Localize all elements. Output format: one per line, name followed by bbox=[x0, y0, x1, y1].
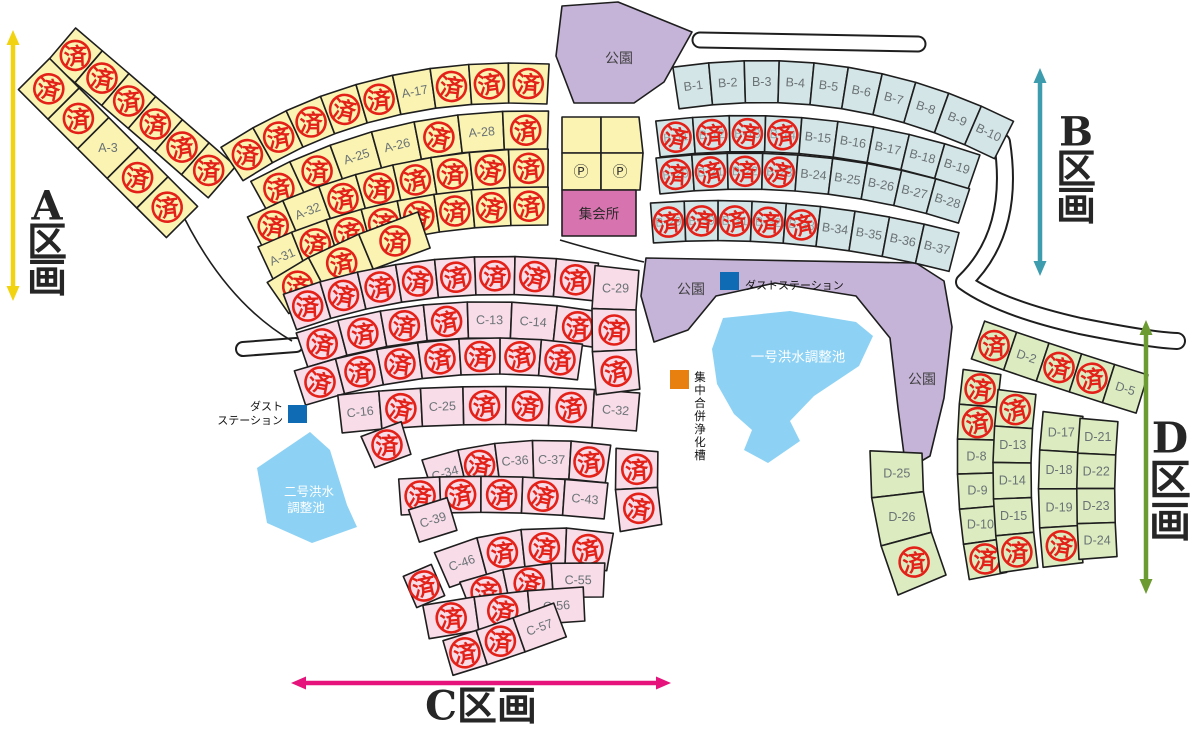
sold-stamp: 済 bbox=[660, 159, 690, 189]
section-B-label: 画 bbox=[1056, 183, 1096, 230]
lot-B-24: B-24 bbox=[795, 155, 833, 194]
lot-number: C-37 bbox=[538, 453, 565, 467]
lot-number: D-24 bbox=[1084, 534, 1111, 548]
dust-station-1-label: ステーション bbox=[217, 415, 283, 427]
dust-station-1-label: ダスト bbox=[250, 399, 283, 413]
section-A-label: 画 bbox=[27, 255, 67, 302]
lot-B-3: B-3 bbox=[744, 61, 779, 103]
lot-number: D-18 bbox=[1046, 463, 1073, 477]
sold-stamp-char: 済 bbox=[309, 330, 336, 359]
sold-stamp-char: 済 bbox=[154, 194, 181, 223]
sold-stamp-char: 済 bbox=[443, 198, 468, 225]
lot-B-4: B-4 bbox=[778, 61, 814, 105]
sold-stamp: 済 bbox=[545, 345, 575, 375]
lot-number: D-15 bbox=[1000, 509, 1027, 523]
sold-stamp-char: 済 bbox=[490, 539, 517, 568]
lot-sold: 済 bbox=[418, 339, 461, 379]
dust-station-2-label: ダストステーション bbox=[745, 278, 844, 292]
sold-stamp: 済 bbox=[440, 196, 470, 226]
sold-stamp-char: 済 bbox=[438, 73, 465, 102]
sold-stamp: 済 bbox=[512, 390, 544, 422]
lot-sold-B-12: B-12済 bbox=[693, 116, 730, 154]
lot-sold: 済 bbox=[377, 343, 423, 385]
lot-C-16: C-16 bbox=[338, 391, 382, 433]
section-C-label: C区画 bbox=[425, 683, 537, 730]
lot-sold: 済 bbox=[1040, 526, 1083, 568]
sold-stamp: 済 bbox=[622, 454, 652, 484]
lot-number: B-24 bbox=[800, 166, 828, 183]
park-top-label: 公園 bbox=[605, 50, 633, 66]
sold-stamp: 済 bbox=[1076, 362, 1107, 393]
lot-number: A-3 bbox=[98, 141, 118, 155]
sold-stamp-char: 済 bbox=[663, 162, 688, 189]
lot-sold: 済 bbox=[430, 65, 472, 109]
septic-tank-label: 化 bbox=[694, 435, 706, 449]
sold-stamp-char: 済 bbox=[478, 194, 505, 223]
septic-tank-label: 併 bbox=[694, 409, 706, 423]
sold-stamp: 済 bbox=[513, 152, 545, 184]
sold-stamp-char: 済 bbox=[367, 176, 392, 203]
sold-stamp-char: 済 bbox=[296, 294, 321, 321]
lot-D-21: D-21 bbox=[1078, 418, 1118, 455]
lot-sold: 済 bbox=[463, 387, 506, 425]
sold-stamp-char: 済 bbox=[516, 71, 541, 98]
sold-stamp-char: 済 bbox=[625, 495, 652, 524]
lot-sold: 済 bbox=[569, 441, 611, 483]
sold-stamp: 済 bbox=[487, 480, 517, 510]
sold-stamp: 済 bbox=[63, 103, 93, 133]
lot-sold: 済 bbox=[475, 257, 516, 295]
sold-stamp-char: 済 bbox=[770, 121, 797, 150]
lot-B-15: B-15 bbox=[799, 118, 838, 158]
lot-sold: 済 bbox=[357, 265, 401, 309]
septic-tank-label: 中 bbox=[694, 384, 706, 397]
lot-number: C-32 bbox=[602, 402, 630, 418]
sold-stamp-char: 済 bbox=[689, 208, 716, 236]
lot-sold: 済 bbox=[995, 390, 1036, 429]
sold-stamp: 済 bbox=[302, 156, 332, 186]
lot-sold: 済 bbox=[396, 260, 439, 303]
lot-sold: 済 bbox=[958, 404, 998, 440]
sold-stamp: 済 bbox=[510, 114, 541, 145]
sold-stamp: 済 bbox=[140, 108, 171, 139]
sold-stamp-char: 済 bbox=[490, 483, 514, 509]
sold-stamp: 済 bbox=[113, 85, 145, 117]
lot-number: C-43 bbox=[571, 491, 599, 507]
septic-tank-label: 浄 bbox=[694, 422, 706, 436]
sold-stamp-char: 済 bbox=[488, 629, 513, 656]
lot-number: D-26 bbox=[888, 510, 915, 524]
sold-stamp: 済 bbox=[599, 315, 629, 345]
lot-sold: 済 bbox=[469, 150, 510, 191]
sold-stamp-char: 済 bbox=[350, 320, 377, 349]
lot-sold: 済 bbox=[539, 340, 583, 380]
pond-2-label: 二号洪水 bbox=[284, 485, 335, 499]
sold-stamp-char: 済 bbox=[124, 164, 151, 193]
lot-sold: 済 bbox=[616, 487, 662, 531]
lot-sold: 済 bbox=[592, 309, 636, 352]
lot-number: C-55 bbox=[565, 573, 592, 587]
lot-D-18: D-18 bbox=[1039, 450, 1080, 489]
lot-sold-B-21: B-21済 bbox=[692, 153, 728, 191]
parking-cell-3-label: Ⓟ bbox=[573, 164, 588, 181]
lot-number: A-28 bbox=[468, 124, 495, 140]
sold-stamp-char: 済 bbox=[532, 535, 558, 563]
lot-number: D-25 bbox=[883, 466, 910, 480]
parking-cell-4-label: Ⓟ bbox=[612, 164, 627, 181]
sold-stamp-char: 済 bbox=[566, 315, 590, 341]
lot-A-28: A-28 bbox=[458, 111, 505, 152]
sold-stamp-char: 済 bbox=[367, 274, 394, 302]
sold-stamp-char: 済 bbox=[439, 605, 465, 633]
sold-stamp: 済 bbox=[970, 544, 1000, 574]
sold-stamp-char: 済 bbox=[734, 120, 761, 149]
sold-stamp: 済 bbox=[485, 626, 515, 656]
lot-number: B-1 bbox=[683, 78, 704, 94]
lot-sold-B-23: B-23済 bbox=[762, 153, 798, 191]
lot-sold-B-13: B-13済 bbox=[729, 116, 765, 152]
lot-sold-B-30: B-30済 bbox=[684, 201, 718, 242]
sold-stamp-char: 済 bbox=[63, 43, 88, 70]
lot-number: D-13 bbox=[999, 438, 1026, 452]
lot-sold: 済 bbox=[459, 338, 500, 375]
sold-stamp-char: 済 bbox=[1005, 540, 1030, 567]
lot-sold: 済 bbox=[481, 476, 523, 513]
lot-sold: 済 bbox=[414, 115, 462, 159]
sold-stamp-char: 済 bbox=[405, 268, 431, 296]
lot-number: C-29 bbox=[602, 282, 629, 296]
sold-stamp-char: 済 bbox=[516, 193, 543, 222]
parking-cell-1 bbox=[562, 117, 601, 153]
site-plan-page: 公園公園公園一号洪水調整池二号洪水調整池ⓅⓅ集会所済済済済済済済済A-3済済済済… bbox=[0, 0, 1199, 731]
sold-stamp: 済 bbox=[389, 310, 420, 341]
lot-sold: 済 bbox=[434, 190, 475, 232]
sold-stamp: 済 bbox=[1002, 537, 1032, 567]
sold-stamp: 済 bbox=[364, 271, 396, 303]
lot-sold: 済 bbox=[469, 63, 509, 104]
sold-stamp: 済 bbox=[364, 84, 395, 115]
lot-sold-B-22: B-22済 bbox=[727, 153, 762, 189]
sold-stamp: 済 bbox=[730, 157, 760, 187]
lot-sold: 済 bbox=[509, 149, 549, 188]
lot-number: B-2 bbox=[718, 75, 738, 90]
lot-sold: 済 bbox=[616, 448, 658, 489]
lot-row-C-15: C-29済済 bbox=[592, 266, 640, 395]
lot-C-29: C-29 bbox=[592, 266, 639, 311]
sold-stamp-char: 済 bbox=[1079, 365, 1105, 393]
lot-sold: 済 bbox=[506, 387, 550, 426]
lot-D-8: D-8 bbox=[958, 439, 996, 474]
dust-station-1-square bbox=[288, 405, 307, 423]
lot-D-14: D-14 bbox=[993, 462, 1031, 499]
septic-tank-square bbox=[670, 370, 689, 389]
sold-stamp: 済 bbox=[438, 159, 468, 189]
lot-sold: 済 bbox=[431, 153, 473, 196]
lot-B-34: B-34 bbox=[816, 207, 855, 251]
sold-stamp: 済 bbox=[60, 40, 90, 70]
sold-stamp-char: 済 bbox=[756, 210, 781, 237]
lot-number: B-4 bbox=[785, 75, 805, 90]
sold-stamp: 済 bbox=[513, 68, 543, 98]
meeting-hall-label: 集会所 bbox=[579, 207, 620, 222]
sold-stamp-char: 済 bbox=[515, 393, 542, 421]
lot-number: D-21 bbox=[1084, 430, 1111, 444]
lot-D-9: D-9 bbox=[958, 473, 998, 509]
lot-number: D-23 bbox=[1082, 499, 1109, 513]
park-center-label: 公園 bbox=[908, 371, 936, 387]
lot-number: B-15 bbox=[804, 129, 832, 146]
lot-row-D-30: D-21D-22D-23D-24 bbox=[1077, 418, 1118, 559]
sold-stamp-char: 済 bbox=[392, 313, 418, 341]
sold-stamp: 済 bbox=[381, 226, 410, 255]
lot-D-13: D-13 bbox=[993, 426, 1033, 463]
lot-sold: 済 bbox=[509, 187, 548, 226]
lot-number: C-25 bbox=[429, 399, 457, 414]
lot-number: D-9 bbox=[967, 484, 987, 498]
road-stub-left bbox=[243, 345, 296, 349]
lot-sold: 済 bbox=[435, 257, 476, 298]
sold-stamp: 済 bbox=[560, 265, 590, 295]
lot-C-14: C-14 bbox=[510, 302, 557, 341]
sold-stamp: 済 bbox=[402, 265, 433, 296]
lot-row-C-20: 済済 bbox=[616, 448, 662, 531]
lot-C-13: C-13 bbox=[467, 302, 512, 338]
lot-C-43: C-43 bbox=[563, 479, 608, 519]
sold-stamp-char: 済 bbox=[973, 547, 998, 574]
sold-stamp-char: 済 bbox=[476, 70, 503, 99]
lot-sold-B-11: B-11済 bbox=[656, 118, 695, 157]
lot-sold: 済 bbox=[592, 350, 639, 395]
sold-stamp-char: 済 bbox=[384, 229, 408, 255]
sold-stamp-char: 済 bbox=[143, 111, 169, 139]
sold-stamp: 済 bbox=[529, 532, 560, 563]
sold-stamp-char: 済 bbox=[733, 159, 757, 185]
pond-1-label: 一号洪水調整池 bbox=[751, 350, 846, 365]
sold-stamp: 済 bbox=[979, 331, 1009, 361]
lot-sold: 済 bbox=[500, 338, 542, 376]
sold-stamp-char: 済 bbox=[441, 161, 466, 188]
sold-stamp-char: 済 bbox=[516, 155, 543, 183]
section-D-label: 画 bbox=[1149, 498, 1191, 547]
lot-sold-B-32: B-32済 bbox=[751, 201, 787, 243]
lot-sold: 済 bbox=[553, 259, 598, 301]
lot-C-36: C-36 bbox=[495, 441, 534, 482]
lot-B-2: B-2 bbox=[709, 61, 746, 105]
lot-number: C-14 bbox=[519, 314, 547, 330]
sold-stamp: 済 bbox=[465, 341, 495, 371]
sold-stamp-char: 済 bbox=[300, 110, 324, 136]
lot-D-25: D-25 bbox=[870, 451, 923, 498]
sold-stamp-char: 済 bbox=[563, 267, 588, 294]
sold-stamp: 済 bbox=[297, 108, 326, 137]
lot-C-32: C-32 bbox=[592, 390, 640, 431]
lot-D-15: D-15 bbox=[994, 498, 1034, 536]
sold-stamp: 済 bbox=[293, 291, 323, 321]
lot-number: B-5 bbox=[818, 78, 839, 94]
lot-D-22: D-22 bbox=[1077, 453, 1116, 488]
sold-stamp-char: 済 bbox=[602, 318, 627, 345]
lot-sold: 済 bbox=[959, 369, 1001, 407]
lot-sold-B-14: B-14済 bbox=[765, 116, 802, 154]
sold-stamp-char: 済 bbox=[348, 359, 374, 387]
lot-row-D-28: 済D-13D-14D-15済 bbox=[993, 390, 1038, 573]
lot-number: C-13 bbox=[476, 313, 503, 327]
sold-stamp-char: 済 bbox=[656, 209, 682, 237]
sold-stamp-char: 済 bbox=[468, 344, 493, 371]
lot-number: B-3 bbox=[752, 75, 772, 89]
sold-stamp: 済 bbox=[194, 156, 224, 186]
lot-D-24: D-24 bbox=[1077, 523, 1117, 560]
sold-stamp: 済 bbox=[686, 205, 718, 237]
sold-stamp: 済 bbox=[964, 373, 996, 405]
septic-tank-label: 合 bbox=[694, 396, 706, 410]
lot-number: C-16 bbox=[346, 404, 374, 421]
lot-D-23: D-23 bbox=[1077, 488, 1115, 523]
lot-number: D-8 bbox=[966, 450, 986, 464]
lot-number: D-17 bbox=[1048, 426, 1075, 440]
lot-D-17: D-17 bbox=[1040, 412, 1083, 453]
lot-sold-B-33: B-33済 bbox=[783, 203, 820, 246]
sold-stamp-char: 済 bbox=[66, 106, 91, 133]
sold-stamp: 済 bbox=[364, 173, 394, 203]
subdivision-map: 公園公園公園一号洪水調整池二号洪水調整池ⓅⓅ集会所済済済済済済済済A-3済済済済… bbox=[0, 0, 1199, 731]
sold-stamp: 済 bbox=[653, 206, 684, 237]
sold-stamp-char: 済 bbox=[427, 345, 454, 374]
lot-number: D-19 bbox=[1046, 501, 1073, 515]
septic-tank-label: 槽 bbox=[694, 449, 706, 462]
sold-stamp-char: 済 bbox=[901, 549, 928, 577]
sold-stamp-char: 済 bbox=[235, 142, 261, 170]
lot-A-17: A-17 bbox=[393, 69, 436, 115]
park-center-label: 公園 bbox=[677, 281, 705, 297]
sold-stamp-char: 済 bbox=[367, 86, 393, 114]
sold-stamp: 済 bbox=[898, 546, 930, 578]
lot-D-19: D-19 bbox=[1039, 489, 1080, 528]
sold-stamp-char: 済 bbox=[452, 639, 479, 668]
sold-stamp-char: 済 bbox=[982, 333, 1006, 359]
lot-sold-B-31: B-31済 bbox=[718, 201, 752, 242]
sold-stamp: 済 bbox=[563, 312, 592, 341]
sold-stamp-char: 済 bbox=[197, 158, 221, 184]
sold-stamp-char: 済 bbox=[576, 449, 603, 477]
sold-stamp: 済 bbox=[345, 356, 376, 387]
sold-stamp: 済 bbox=[469, 390, 500, 421]
lot-sold: 済 bbox=[508, 63, 549, 104]
lot-number: C-36 bbox=[501, 453, 529, 469]
lot-sold: 済 bbox=[522, 477, 566, 515]
septic-tank-label: 集 bbox=[694, 370, 706, 384]
sold-stamp: 済 bbox=[372, 430, 402, 460]
sold-stamp: 済 bbox=[436, 602, 467, 633]
sold-stamp-char: 済 bbox=[387, 351, 414, 380]
lot-C-37: C-37 bbox=[533, 441, 572, 480]
sold-stamp: 済 bbox=[232, 139, 263, 170]
sold-stamp: 済 bbox=[573, 446, 605, 478]
sold-stamp: 済 bbox=[753, 207, 783, 237]
lot-sold: 済 bbox=[549, 388, 595, 428]
sold-stamp-char: 済 bbox=[472, 393, 498, 421]
lot-sold: 済 bbox=[503, 111, 549, 149]
lot-sold-B-29: B-29済 bbox=[651, 201, 686, 243]
lot-sold: 済 bbox=[471, 188, 511, 228]
road-top-culdesac bbox=[700, 40, 918, 44]
lot-B-1: B-1 bbox=[673, 63, 713, 109]
sold-stamp-char: 済 bbox=[116, 88, 143, 116]
lot-number: D-14 bbox=[999, 474, 1026, 488]
sold-stamp-char: 済 bbox=[625, 457, 650, 484]
lot-sold: 済 bbox=[521, 528, 567, 567]
lot-sold: 済 bbox=[514, 257, 556, 297]
parking-cell-2 bbox=[601, 117, 643, 153]
sold-stamp-char: 済 bbox=[548, 348, 572, 374]
sold-stamp-char: 済 bbox=[513, 117, 539, 145]
sold-stamp: 済 bbox=[480, 261, 510, 291]
sold-stamp-char: 済 bbox=[967, 376, 994, 404]
dust-station-2-square bbox=[720, 272, 739, 290]
lot-C-25: C-25 bbox=[421, 387, 464, 427]
sold-stamp-char: 済 bbox=[375, 433, 400, 460]
lot-number: D-10 bbox=[967, 518, 994, 532]
sold-stamp: 済 bbox=[696, 119, 727, 150]
lot-sold: 済 bbox=[423, 302, 468, 341]
lot-sold-B-20: B-20済 bbox=[656, 155, 694, 194]
lot-sold: 済 bbox=[996, 532, 1038, 572]
pond-2-label: 調整池 bbox=[287, 500, 325, 515]
sold-stamp-char: 済 bbox=[699, 122, 725, 150]
sold-stamp-char: 済 bbox=[305, 159, 329, 185]
lot-sold: 済 bbox=[380, 305, 427, 347]
sold-stamp-char: 済 bbox=[483, 264, 507, 290]
lot-number: D-22 bbox=[1083, 464, 1110, 478]
